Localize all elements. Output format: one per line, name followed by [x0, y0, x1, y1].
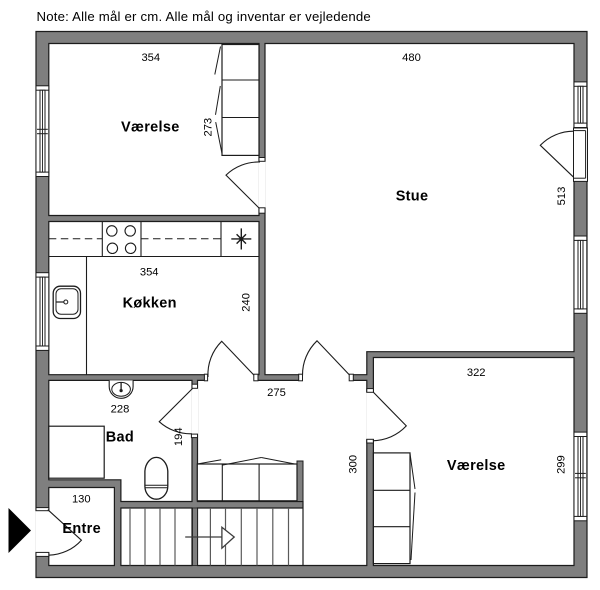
svg-text:275: 275	[267, 387, 286, 399]
svg-text:300: 300	[347, 455, 359, 474]
svg-text:240: 240	[241, 293, 253, 312]
svg-text:299: 299	[555, 455, 567, 474]
svg-text:Bad: Bad	[106, 430, 134, 446]
svg-text:322: 322	[467, 367, 486, 379]
svg-text:Køkken: Køkken	[123, 296, 177, 312]
svg-text:Stue: Stue	[396, 188, 429, 204]
svg-text:Entre: Entre	[62, 521, 101, 537]
svg-text:Værelse: Værelse	[447, 458, 506, 474]
svg-text:130: 130	[72, 493, 91, 505]
svg-text:354: 354	[140, 266, 159, 278]
svg-text:354: 354	[141, 52, 160, 64]
svg-text:194: 194	[173, 427, 185, 446]
svg-text:480: 480	[402, 52, 421, 64]
svg-text:273: 273	[202, 118, 214, 137]
svg-text:513: 513	[556, 187, 568, 206]
svg-text:Værelse: Værelse	[121, 119, 180, 135]
svg-text:Note: Alle mål er cm. Alle mål: Note: Alle mål er cm. Alle mål og invent…	[37, 9, 371, 24]
svg-text:228: 228	[111, 404, 130, 416]
